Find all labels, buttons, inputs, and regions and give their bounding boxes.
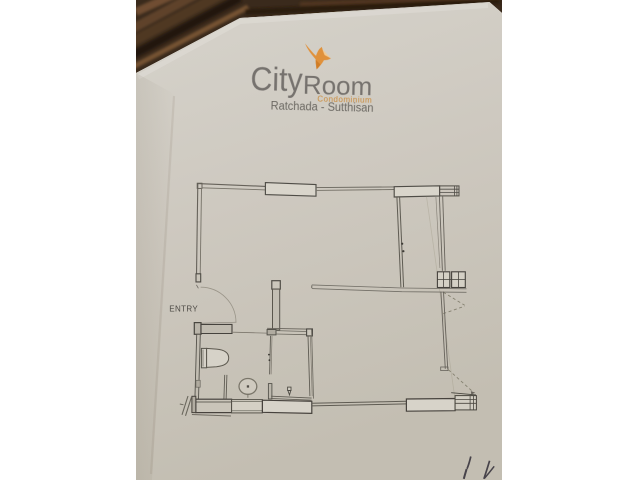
svg-text:City: City [250,60,303,99]
svg-text:ENTRY: ENTRY [169,305,198,314]
svg-text:Ratchada - Sutthisan: Ratchada - Sutthisan [270,99,373,115]
